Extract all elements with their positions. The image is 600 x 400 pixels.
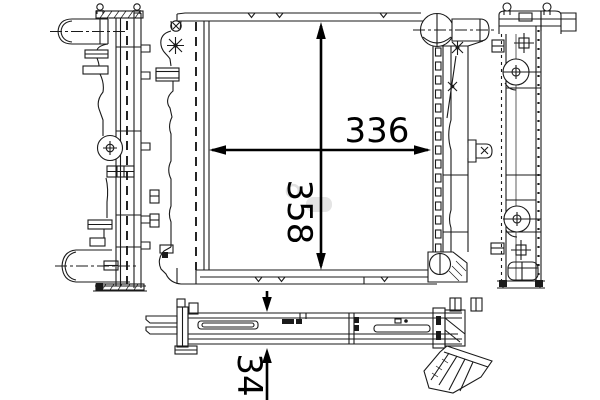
front-view: [156, 13, 497, 284]
height-dimension-label: 358: [279, 180, 319, 245]
dimension-depth: 34: [229, 291, 272, 400]
mounting-pin-icon: [97, 4, 140, 14]
right-side-view: [491, 3, 576, 288]
side-stub-pipe: [468, 140, 492, 162]
filler-neck: [413, 14, 497, 47]
diagonal-outlet-duct: [424, 346, 492, 393]
width-dimension-label: 336: [345, 111, 410, 151]
mounting-boss: [503, 59, 541, 237]
technical-drawing: 336 358 34: [0, 0, 600, 400]
left-tank: [156, 21, 196, 284]
arrowhead-left-icon: [209, 145, 226, 155]
clip-symbol-icon: [167, 37, 184, 54]
bottom-view: [146, 298, 492, 393]
drawing-canvas: 336 358 34: [0, 0, 600, 400]
depth-dimension-label: 34: [229, 353, 269, 396]
mounting-boss: [98, 136, 123, 161]
tank-clip-holes: [436, 48, 442, 266]
part-marking: [282, 317, 408, 331]
bottom-outlet: [428, 252, 467, 282]
dimension-height: 358: [279, 22, 326, 270]
clip: [150, 190, 159, 227]
outlet-pipe: [55, 250, 136, 282]
arrowhead-down-icon: [262, 297, 272, 312]
arrowhead-down-icon: [316, 253, 326, 270]
arrowhead-up-icon: [316, 22, 326, 39]
left-connector: [146, 299, 198, 354]
left-side-view: [50, 4, 159, 291]
arrowhead-right-icon: [414, 145, 431, 155]
